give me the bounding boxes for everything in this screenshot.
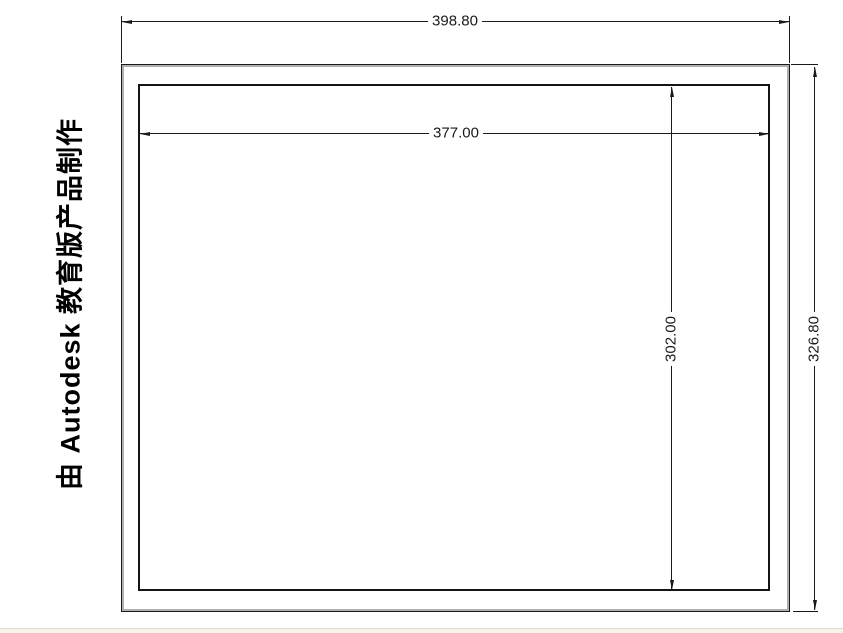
extension-line — [793, 611, 818, 612]
dimension-text-outer-height: 326.80 — [807, 312, 822, 366]
dimension-text-outer-width: 398.80 — [428, 14, 482, 29]
arrowhead-left-icon — [140, 132, 150, 136]
extension-line — [789, 16, 790, 63]
bottom-window-edge-strip — [0, 628, 843, 633]
arrowhead-right-icon — [779, 20, 789, 24]
arrowhead-down-icon — [813, 600, 817, 610]
extension-line — [791, 64, 818, 65]
arrowhead-up-icon — [670, 87, 674, 97]
arrowhead-down-icon — [670, 580, 674, 590]
arrowhead-right-icon — [759, 132, 769, 136]
autodesk-educational-watermark: 由 Autodesk 教育版产品制作 — [49, 118, 88, 490]
arrowhead-up-icon — [813, 67, 817, 77]
dimension-text-inner-height: 302.00 — [664, 312, 679, 366]
dimension-text-inner-width: 377.00 — [429, 126, 483, 141]
cad-drawing-viewport: 由 Autodesk 教育版产品制作 398.80 377.00 302.00 … — [0, 0, 843, 633]
arrowhead-left-icon — [122, 20, 132, 24]
